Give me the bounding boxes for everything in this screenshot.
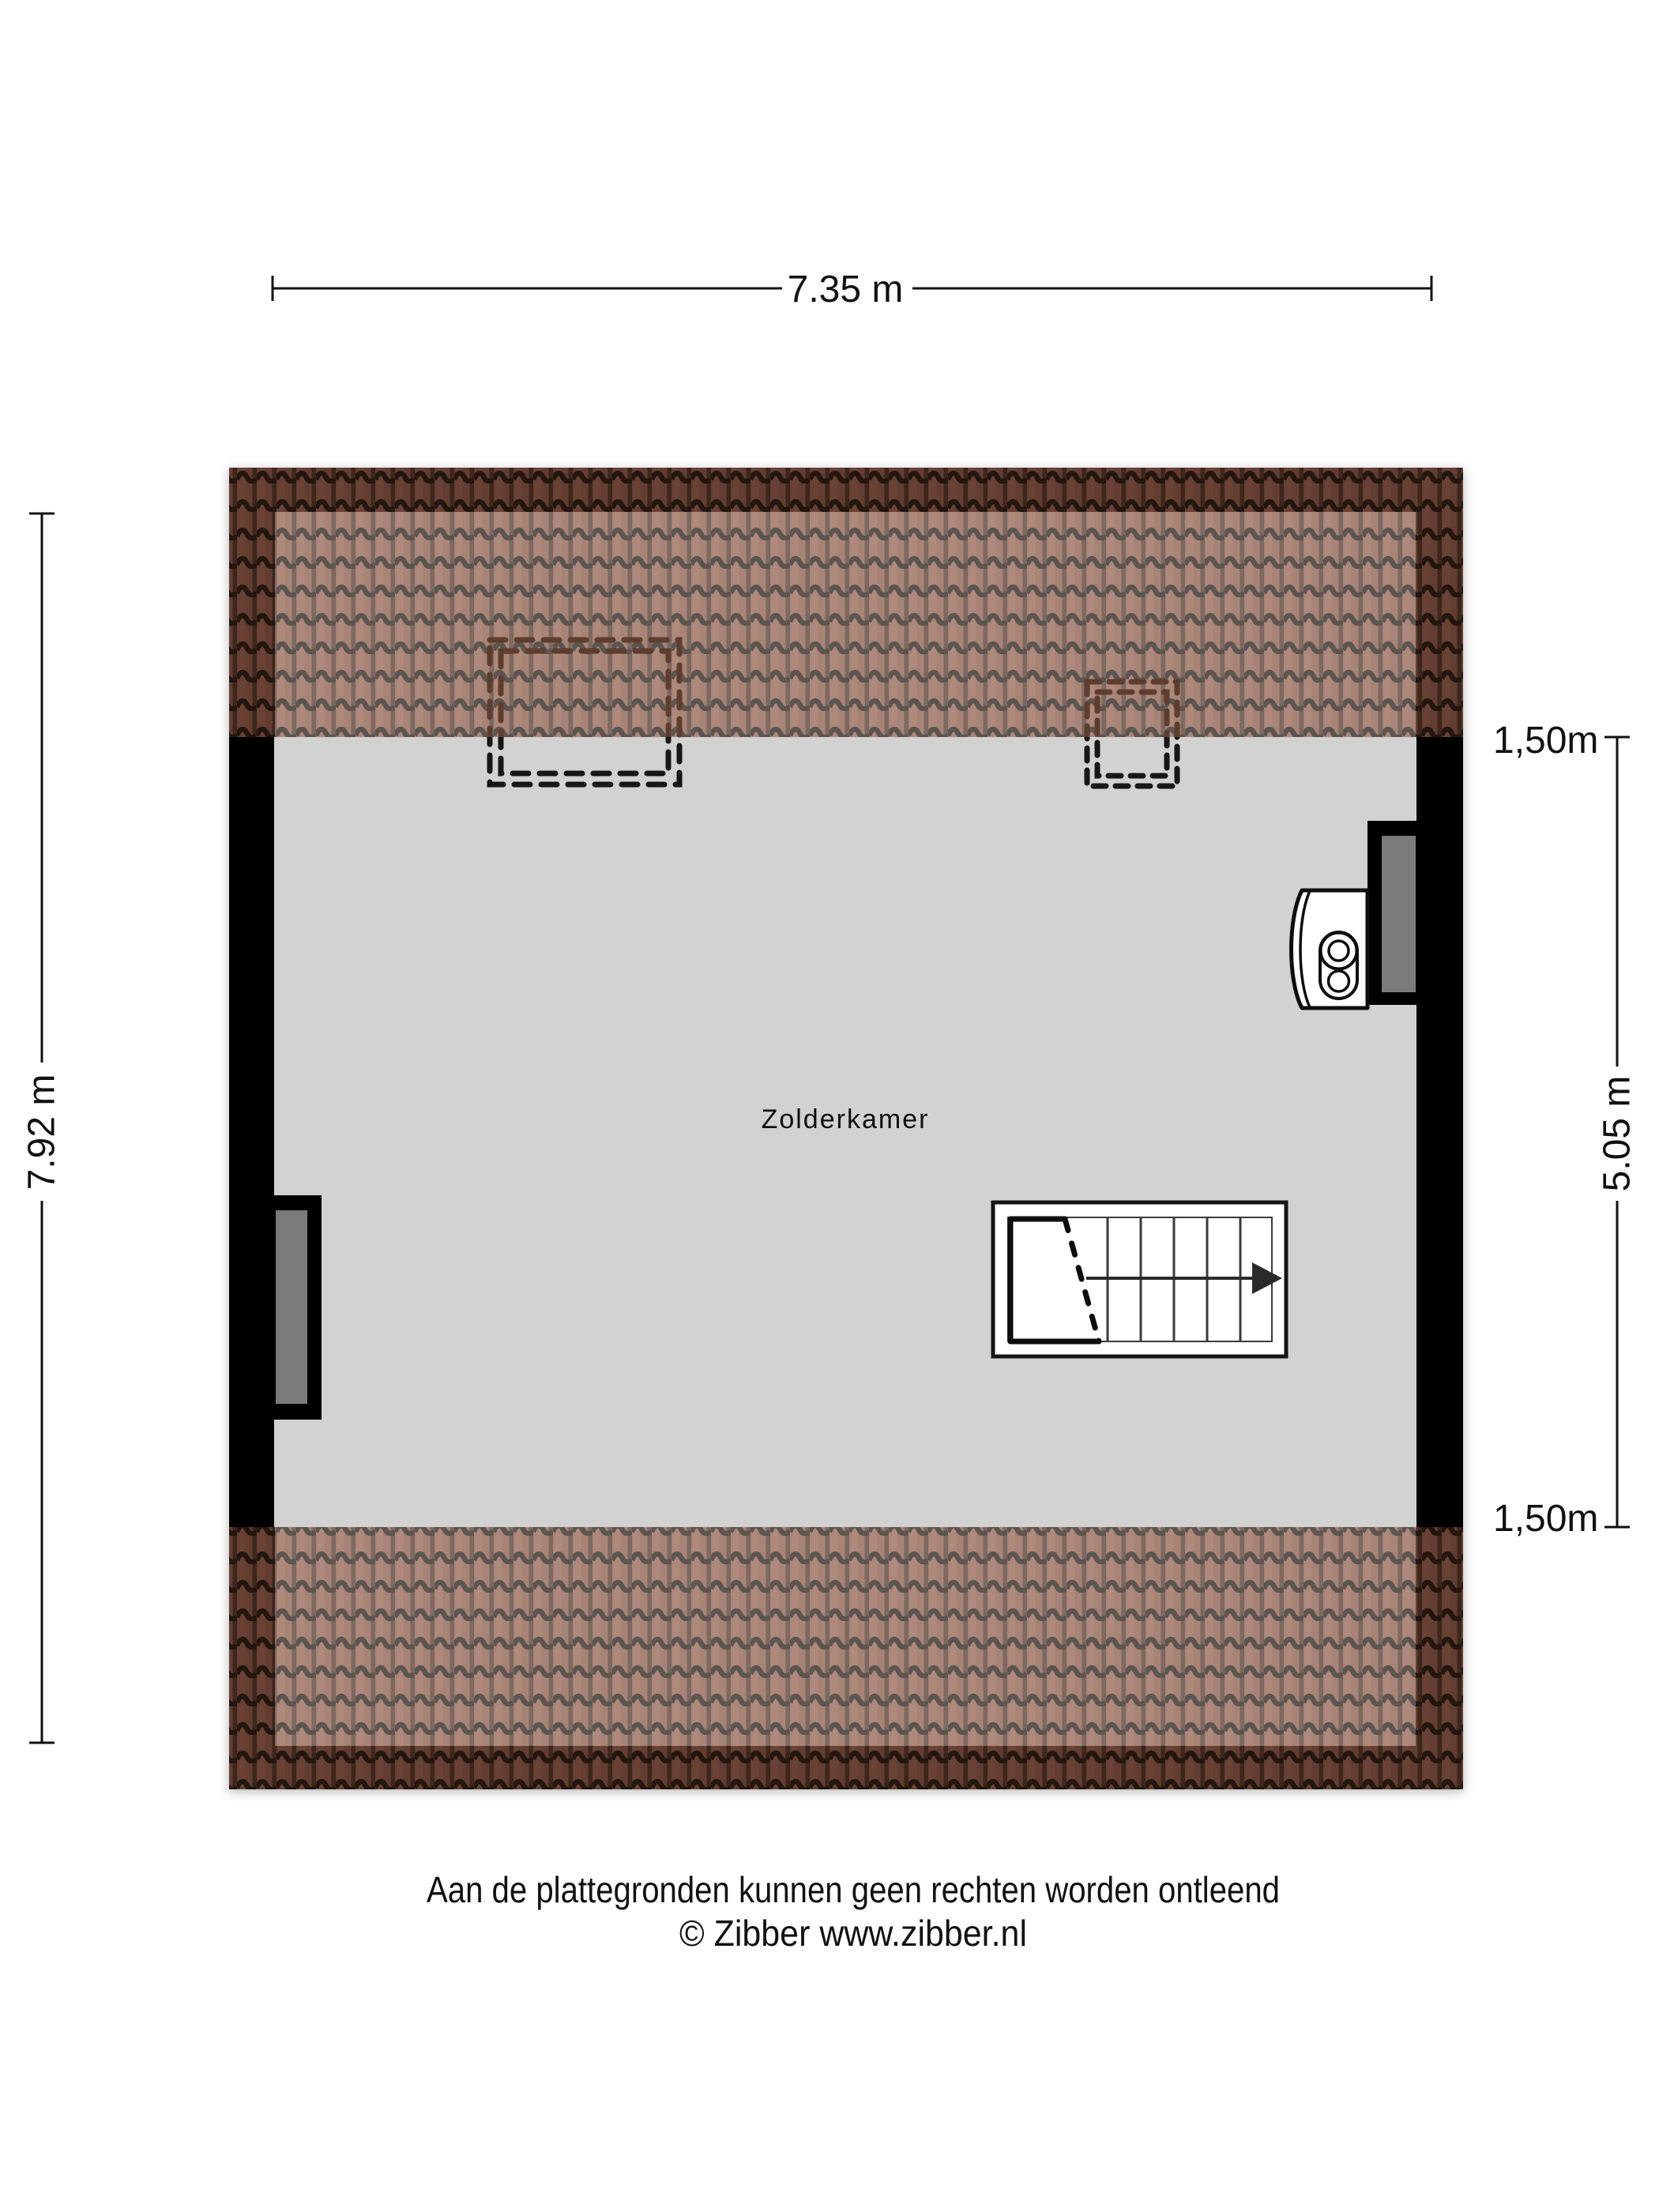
window-left [270, 1195, 322, 1420]
footer-copyright: © Zibber www.zibber.nl [679, 1913, 1027, 1954]
dimension-right-top-label: 1,50m [1493, 720, 1598, 762]
dimension-top-width-label: 7.35 m [788, 269, 904, 310]
footer-disclaimer: Aan de plattegronden kunnen geen rechten… [427, 1869, 1280, 1910]
room-label: Zolderkamer [762, 1104, 930, 1134]
wall-left [229, 737, 274, 1527]
dimension-left-height-label: 7.92 m [21, 1074, 63, 1191]
roof-band-top [229, 468, 1463, 737]
dimension-right-middle-label: 5.05 m [1597, 1076, 1638, 1192]
floor-plan: Zolderkamer [229, 468, 1463, 1789]
window-right [1367, 821, 1463, 1005]
floorplan-page: Zolderkamer 7.35 m 7.92 m 1,50m 5.05 m 1… [0, 0, 1659, 2212]
boiler-icon [1292, 890, 1368, 1008]
staircase-icon [993, 1202, 1286, 1356]
floorplan-drawing: Zolderkamer 7.35 m 7.92 m 1,50m 5.05 m 1… [0, 0, 1659, 2212]
roof-band-bottom [229, 1527, 1463, 1789]
dimension-right-bottom-label: 1,50m [1493, 1498, 1598, 1540]
